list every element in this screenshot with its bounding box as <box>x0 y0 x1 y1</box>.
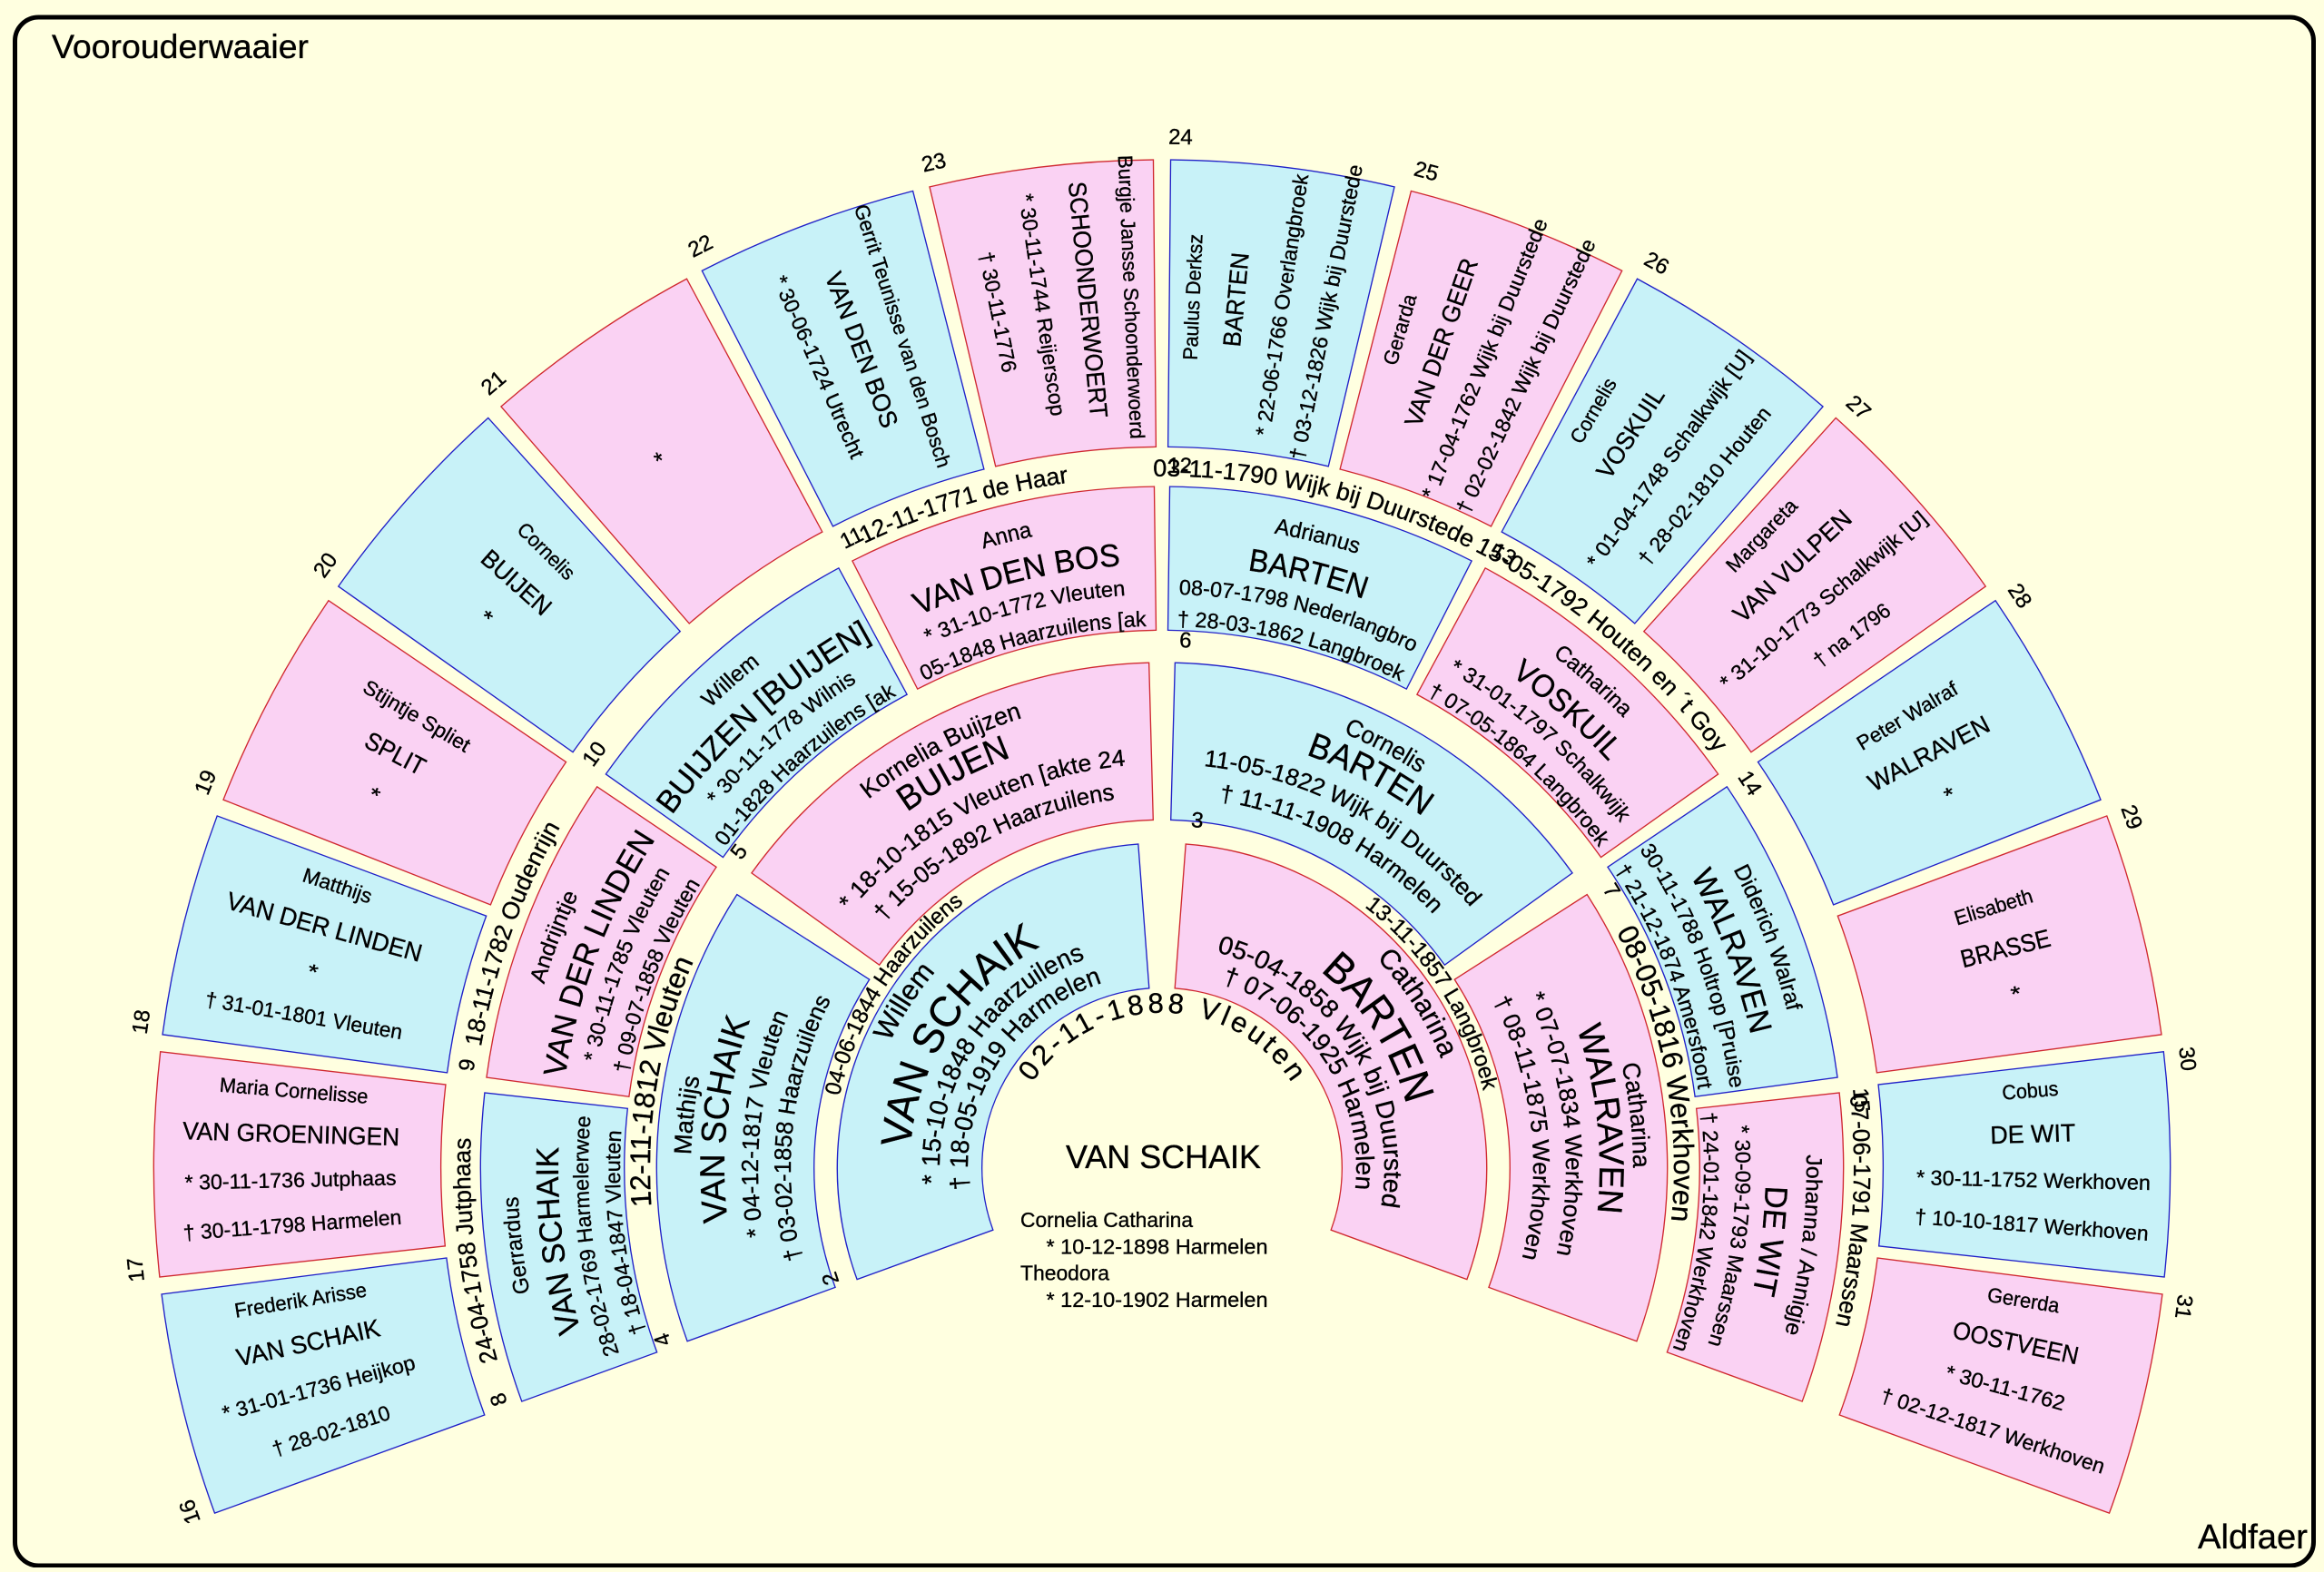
svg-text:* 30-11-1736 Jutphaas: * 30-11-1736 Jutphaas <box>184 1165 397 1194</box>
svg-text:18: 18 <box>128 1008 155 1036</box>
svg-text:Theodora: Theodora <box>1020 1262 1109 1285</box>
svg-text:24: 24 <box>1168 125 1193 150</box>
svg-text:* 12-10-1902 Harmelen: * 12-10-1902 Harmelen <box>1047 1288 1268 1312</box>
svg-text:31: 31 <box>2170 1293 2197 1321</box>
svg-text:30: 30 <box>2173 1046 2201 1072</box>
svg-text:Aldfaer: Aldfaer <box>2198 1518 2308 1557</box>
svg-text:17: 17 <box>123 1256 150 1282</box>
svg-text:DE WIT: DE WIT <box>1990 1118 2076 1149</box>
svg-text:Voorouderwaaier: Voorouderwaaier <box>52 27 309 65</box>
svg-text:Cobus: Cobus <box>2001 1077 2059 1105</box>
svg-text:3: 3 <box>1190 808 1205 833</box>
svg-text:Cornelia Catharina: Cornelia Catharina <box>1020 1208 1193 1232</box>
svg-text:6: 6 <box>1179 628 1193 653</box>
svg-text:VAN SCHAIK: VAN SCHAIK <box>1066 1138 1261 1175</box>
svg-text:* 10-12-1898 Harmelen: * 10-12-1898 Harmelen <box>1047 1234 1268 1258</box>
